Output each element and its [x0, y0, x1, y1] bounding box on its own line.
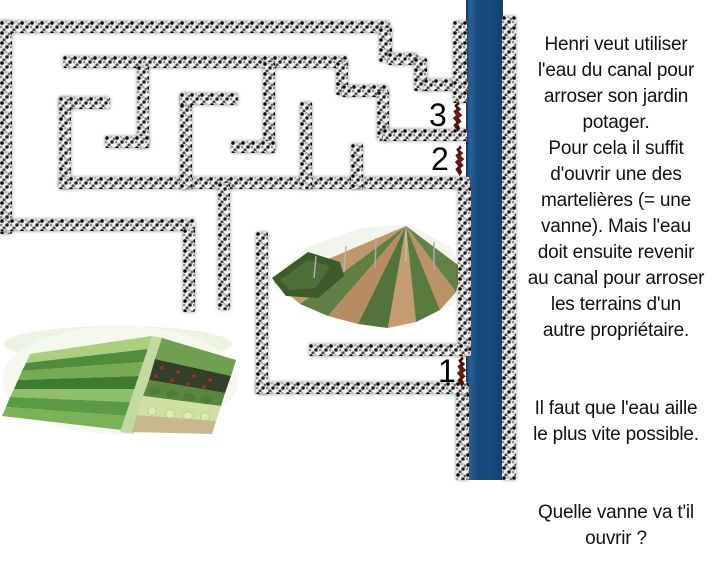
maze-wall: [59, 177, 470, 189]
maze-wall: [458, 187, 471, 356]
maze-wall: [105, 136, 149, 148]
maze-wall: [263, 62, 275, 152]
vanne-label-1: 1: [438, 355, 456, 387]
maze-wall: [453, 21, 467, 103]
maze-wall: [456, 383, 469, 480]
vanne-marker-3[interactable]: [452, 101, 463, 132]
instructions-paragraph-2: Il faut que l'eau aille le plus vite pos…: [512, 396, 720, 448]
maze-wall: [231, 141, 275, 153]
instructions-paragraph-3: Quelle vanne va t'il ouvrir ?: [512, 500, 720, 552]
maze-wall: [0, 21, 12, 234]
vanne-label-2: 2: [431, 143, 449, 175]
maze-wall: [0, 21, 390, 33]
maze-wall: [0, 219, 195, 231]
maze-wall: [256, 232, 268, 394]
maze-wall: [180, 93, 238, 105]
instructions-panel: Henri veut utiliser l'eau du canal pour …: [512, 0, 720, 480]
vanne-marker-2[interactable]: [454, 145, 465, 176]
instructions-paragraph-1: Henri veut utiliser l'eau du canal pour …: [512, 32, 720, 344]
maze-wall: [59, 97, 71, 189]
maze-wall: [63, 56, 347, 68]
maze-wall: [218, 183, 230, 310]
maze-wall: [180, 94, 192, 189]
maze-wall: [300, 102, 312, 189]
maze-wall: [256, 382, 468, 394]
maze-wall: [183, 229, 195, 312]
scene: { "instructions": { "paragraph1": "Henri…: [0, 0, 720, 480]
maze-wall: [351, 144, 363, 189]
vanne-label-3: 3: [429, 99, 447, 131]
maze-wall: [383, 129, 467, 141]
